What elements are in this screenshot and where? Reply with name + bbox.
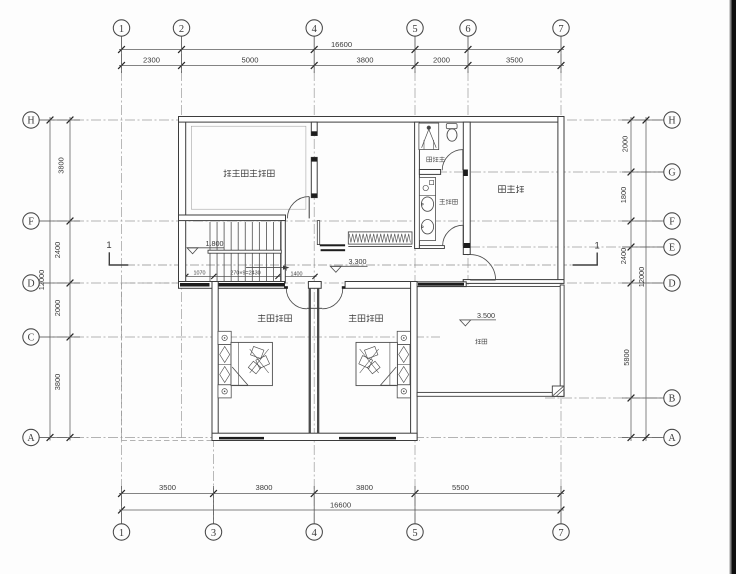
svg-text:7: 7 [558,528,563,539]
svg-text:G: G [668,168,675,179]
svg-text:1070: 1070 [194,270,206,276]
svg-text:3500: 3500 [506,55,523,64]
svg-text:1: 1 [106,240,111,251]
svg-text:5500: 5500 [452,483,469,492]
svg-text:1: 1 [595,240,600,251]
svg-text:12000: 12000 [637,267,646,288]
svg-text:F: F [669,217,675,228]
svg-text:D: D [27,279,34,290]
svg-text:2000: 2000 [53,300,62,316]
svg-text:A: A [668,433,676,444]
svg-text:3: 3 [211,528,216,539]
svg-text:3.300: 3.300 [349,257,367,266]
svg-text:2000: 2000 [433,55,450,64]
svg-text:16600: 16600 [331,40,352,49]
svg-text:3800: 3800 [53,374,62,390]
svg-text:A: A [27,433,35,444]
svg-text:4: 4 [312,528,318,539]
svg-text:1: 1 [119,528,124,539]
svg-text:7: 7 [558,24,563,35]
svg-text:16600: 16600 [330,500,351,509]
svg-text:2400: 2400 [619,248,628,264]
svg-text:5000: 5000 [242,55,259,64]
svg-text:3800: 3800 [57,157,66,173]
svg-text:H: H [27,116,34,127]
svg-text:2400: 2400 [53,242,62,258]
svg-text:1: 1 [119,24,124,35]
svg-text:1.800: 1.800 [206,239,224,248]
svg-text:1800: 1800 [619,187,628,203]
svg-text:2300: 2300 [143,55,160,64]
svg-text:3800: 3800 [357,55,374,64]
svg-text:2: 2 [179,24,184,35]
svg-text:3800: 3800 [356,483,373,492]
svg-text:5800: 5800 [622,349,631,365]
svg-text:6: 6 [465,24,470,35]
svg-text:H: H [668,116,675,127]
svg-text:5: 5 [412,24,417,35]
svg-text:3800: 3800 [256,483,273,492]
svg-text:D: D [668,279,675,290]
svg-text:B: B [669,394,676,405]
svg-text:E: E [669,243,675,254]
svg-text:2000: 2000 [621,136,630,152]
svg-text:1400: 1400 [291,272,303,278]
svg-text:3.500: 3.500 [477,311,495,320]
svg-text:C: C [28,333,35,344]
svg-text:5: 5 [412,528,417,539]
svg-text:F: F [28,217,34,228]
svg-text:3500: 3500 [159,483,176,492]
svg-text:4: 4 [312,24,318,35]
